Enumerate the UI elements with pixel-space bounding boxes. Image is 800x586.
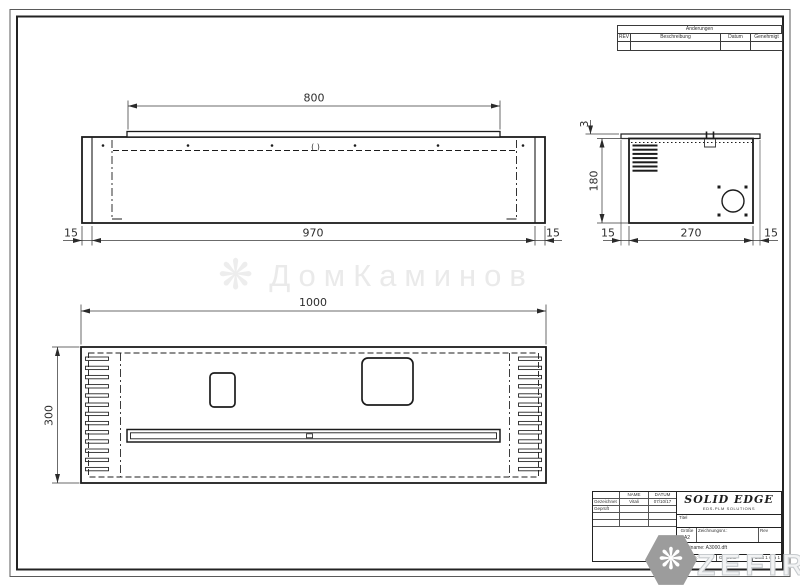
- plan-view: [81, 347, 546, 483]
- sig-row4-empty: [593, 520, 620, 527]
- checked-date-empty: [649, 506, 676, 513]
- logo-subtitle: EDS-PLM SOLUTIONS: [703, 507, 755, 511]
- desc-col-header: Beschreibung: [631, 34, 721, 42]
- rev-cell: Rev: [759, 528, 781, 542]
- dim-15-side-right: 15: [764, 227, 778, 240]
- side-hole: [722, 190, 744, 212]
- sig-row4-name-empty: [620, 520, 649, 527]
- plan-hidden-dividers: [121, 353, 510, 477]
- checked-label: Geprüft: [593, 506, 620, 513]
- drawing-number-cell: Zeichnungsnr.:: [697, 528, 759, 542]
- revision-table: Änderungen REV Beschreibung Datum Genehm…: [617, 25, 783, 51]
- date-col-header2: DATUM: [649, 492, 676, 499]
- approved-col-header: Genehmigt: [751, 34, 782, 42]
- dim-1000: 1000: [299, 296, 327, 309]
- front-top-plate: [127, 132, 500, 138]
- sig-row3-empty: [593, 513, 620, 520]
- dim-300: 300: [43, 405, 56, 426]
- drawing-sheet: ❋ ДомКаминов ( ): [0, 0, 800, 586]
- plan-hidden-rect: [89, 353, 539, 477]
- rev-cell-empty: [618, 42, 631, 50]
- dim-270: 270: [681, 227, 702, 240]
- title-field: Titel: [677, 515, 781, 528]
- rev-col-header: REV: [618, 34, 631, 42]
- dim-180: 180: [588, 171, 601, 192]
- revision-table-title: Änderungen: [618, 26, 782, 34]
- dim-15-front-right: 15: [546, 227, 560, 240]
- side-view: [621, 132, 760, 224]
- checked-name-empty: [620, 506, 649, 513]
- document-row: Größe A2 Zeichnungsnr.: Rev: [677, 528, 781, 543]
- drawn-name: Vitali: [620, 499, 649, 506]
- drawn-date: 07/10/17: [649, 499, 676, 506]
- name-col-header: NAME: [620, 492, 649, 499]
- date-col-header: Datum: [721, 34, 751, 42]
- side-louvers: [633, 145, 658, 172]
- sig-row4-date-empty: [649, 520, 676, 527]
- size-label: Größe: [678, 529, 696, 534]
- date-cell-empty: [721, 42, 751, 50]
- side-bracket: [705, 140, 716, 148]
- plan-cutout-large: [362, 358, 413, 405]
- dim-3: 3: [578, 121, 591, 128]
- drawn-label: Gezeichnet: [593, 499, 620, 506]
- desc-cell-empty: [631, 42, 721, 50]
- plan-slot-inner: [131, 433, 497, 439]
- plan-slot-center-mark: [307, 434, 313, 438]
- fan-icon: ❋: [658, 545, 683, 575]
- dim-970: 970: [303, 227, 324, 240]
- front-view: ( ): [82, 132, 545, 224]
- plan-cutout-small: [210, 373, 235, 407]
- logo-title: SOLID EDGE: [684, 494, 773, 506]
- front-center-mark: ( ): [311, 143, 320, 152]
- dim-800: 800: [304, 92, 325, 105]
- solid-edge-logo: SOLID EDGE EDS-PLM SOLUTIONS: [677, 492, 781, 515]
- sig-corner-empty: [593, 492, 620, 499]
- sig-row3-date-empty: [649, 513, 676, 520]
- plan-outline: [81, 347, 546, 483]
- side-top-prongs: [707, 132, 714, 139]
- plan-slot-outer: [127, 430, 500, 443]
- approved-cell-empty: [751, 42, 782, 50]
- dim-15-side-left: 15: [601, 227, 615, 240]
- side-outline: [629, 139, 753, 224]
- plan-dimensions: 1000 300: [43, 296, 547, 483]
- sig-row3-name-empty: [620, 513, 649, 520]
- dim-15-front-left: 15: [64, 227, 78, 240]
- zefire-watermark-text: ZEFIRE: [697, 549, 800, 582]
